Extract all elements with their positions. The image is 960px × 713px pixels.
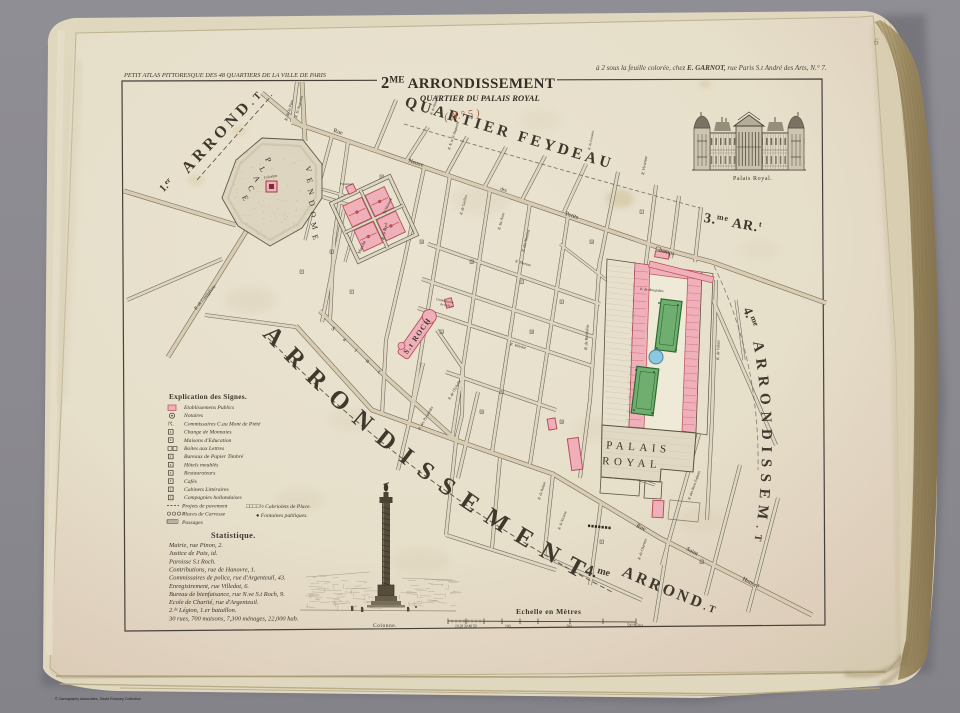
svg-text:Compagnies hollandaises: Compagnies hollandaises: [184, 495, 242, 501]
svg-text:30 rues, 700 maisons, 7,300 mé: 30 rues, 700 maisons, 7,300 ménages, 22,…: [168, 615, 299, 622]
svg-text:□□□□½ Cabriolets de Place.: □□□□½ Cabriolets de Place.: [246, 503, 311, 510]
svg-text:x: x: [170, 455, 172, 459]
svg-text:Hôtels meublés: Hôtels meublés: [183, 462, 218, 468]
svg-text:Restaurateurs: Restaurateurs: [183, 471, 215, 477]
svg-text:E: E: [331, 250, 333, 254]
svg-text:Echelle en Mètres: Echelle en Mètres: [516, 607, 581, 616]
svg-text:Cafés: Cafés: [184, 478, 197, 485]
svg-text:x: x: [170, 463, 172, 467]
svg-text:Bureau de bienfaisance, rue N.: Bureau de bienfaisance, rue N.ve S.t Roc…: [169, 591, 285, 598]
svg-text:2MEARRONDISSEMENT: 2MEARRONDISSEMENT: [381, 73, 555, 92]
svg-text:100: 100: [505, 625, 511, 629]
svg-text:Palais Royal.: Palais Royal.: [733, 176, 772, 182]
svg-text:x: x: [170, 471, 172, 475]
svg-text:Paroisse S.t Roch.: Paroisse S.t Roch.: [168, 558, 216, 565]
svg-text:Explication des Signes.: Explication des Signes.: [169, 392, 247, 401]
svg-text:Projets de pavement: Projets de pavement: [181, 503, 228, 509]
svg-text:C: C: [521, 280, 523, 284]
svg-text:Change de Monnaies: Change de Monnaies: [184, 430, 232, 436]
svg-text:10 20 30 40 50: 10 20 30 40 50: [455, 625, 477, 629]
svg-text:QUARTIER DU PALAIS ROYAL: QUARTIER DU PALAIS ROYAL: [420, 93, 540, 103]
svg-text:500 Mètres: 500 Mètres: [627, 624, 644, 628]
svg-text:Boîtes aux Lettres: Boîtes aux Lettres: [184, 446, 224, 452]
svg-text:Justice de Paix, id.: Justice de Paix, id.: [169, 550, 218, 557]
svg-text:Bureaux de Papier Timbré: Bureaux de Papier Timbré: [184, 454, 244, 460]
svg-text:Notaires: Notaires: [183, 413, 203, 419]
svg-text:200: 200: [566, 625, 572, 629]
svg-text:PETIT ATLAS PITTORESQUE DES 48: PETIT ATLAS PITTORESQUE DES 48 QUARTIERS…: [123, 72, 327, 79]
svg-text:Fontaine: Fontaine: [339, 182, 353, 186]
svg-text:6: 6: [874, 37, 879, 47]
svg-text:Passages: Passages: [181, 520, 203, 526]
svg-text:R. de Valois: R. de Valois: [715, 340, 721, 361]
svg-text:Commissaires de police, rue d': Commissaires de police, rue d'Argenteuil…: [169, 575, 286, 582]
svg-text:Places de Carrosse: Places de Carrosse: [181, 512, 226, 518]
svg-text:C: C: [641, 210, 643, 214]
svg-text:x: x: [170, 487, 172, 491]
svg-text:Etablissemens Publics: Etablissemens Publics: [183, 405, 234, 411]
svg-text:Cabinets Littéraires: Cabinets Littéraires: [184, 487, 229, 493]
svg-text:x: x: [170, 496, 172, 500]
svg-text:Mairie, rue Pinon, 2.: Mairie, rue Pinon, 2.: [168, 542, 223, 549]
svg-text:x: x: [170, 438, 172, 442]
svg-text:Contributions, rue de Hanovre,: Contributions, rue de Hanovre, 1.: [169, 566, 256, 573]
svg-text:Maisons d'Education: Maisons d'Education: [183, 438, 232, 444]
svg-text:B: B: [481, 410, 483, 414]
svg-text:2.ᵈᵉ Légion, 1.er bataillon.: 2.ᵈᵉ Légion, 1.er bataillon.: [169, 607, 237, 614]
svg-text:☈.: ☈.: [168, 421, 174, 427]
svg-text:x: x: [170, 430, 172, 434]
svg-text:● Fontaines publiques.: ● Fontaines publiques.: [256, 513, 308, 519]
svg-text:Colonne.: Colonne.: [373, 623, 397, 629]
svg-text:E: E: [561, 300, 563, 304]
svg-text:Commissaires C.au Mont de Piét: Commissaires C.au Mont de Piété: [184, 421, 261, 427]
svg-text:B: B: [501, 390, 503, 394]
svg-text:Ecole de Charité, rue d'Argent: Ecole de Charité, rue d'Argenteuil.: [168, 599, 259, 606]
svg-text:à 2 sous la feuille colorée, c: à 2 sous la feuille colorée, chez E. GAR…: [596, 64, 827, 72]
svg-text:© Cartography Associates, Davi: © Cartography Associates, David Rumsey C…: [55, 697, 141, 701]
svg-text:Enregistrement, rue Villedot,: Enregistrement, rue Villedot, 6.: [168, 583, 249, 590]
svg-text:Statistique.: Statistique.: [211, 531, 256, 540]
svg-text:x: x: [170, 479, 172, 483]
